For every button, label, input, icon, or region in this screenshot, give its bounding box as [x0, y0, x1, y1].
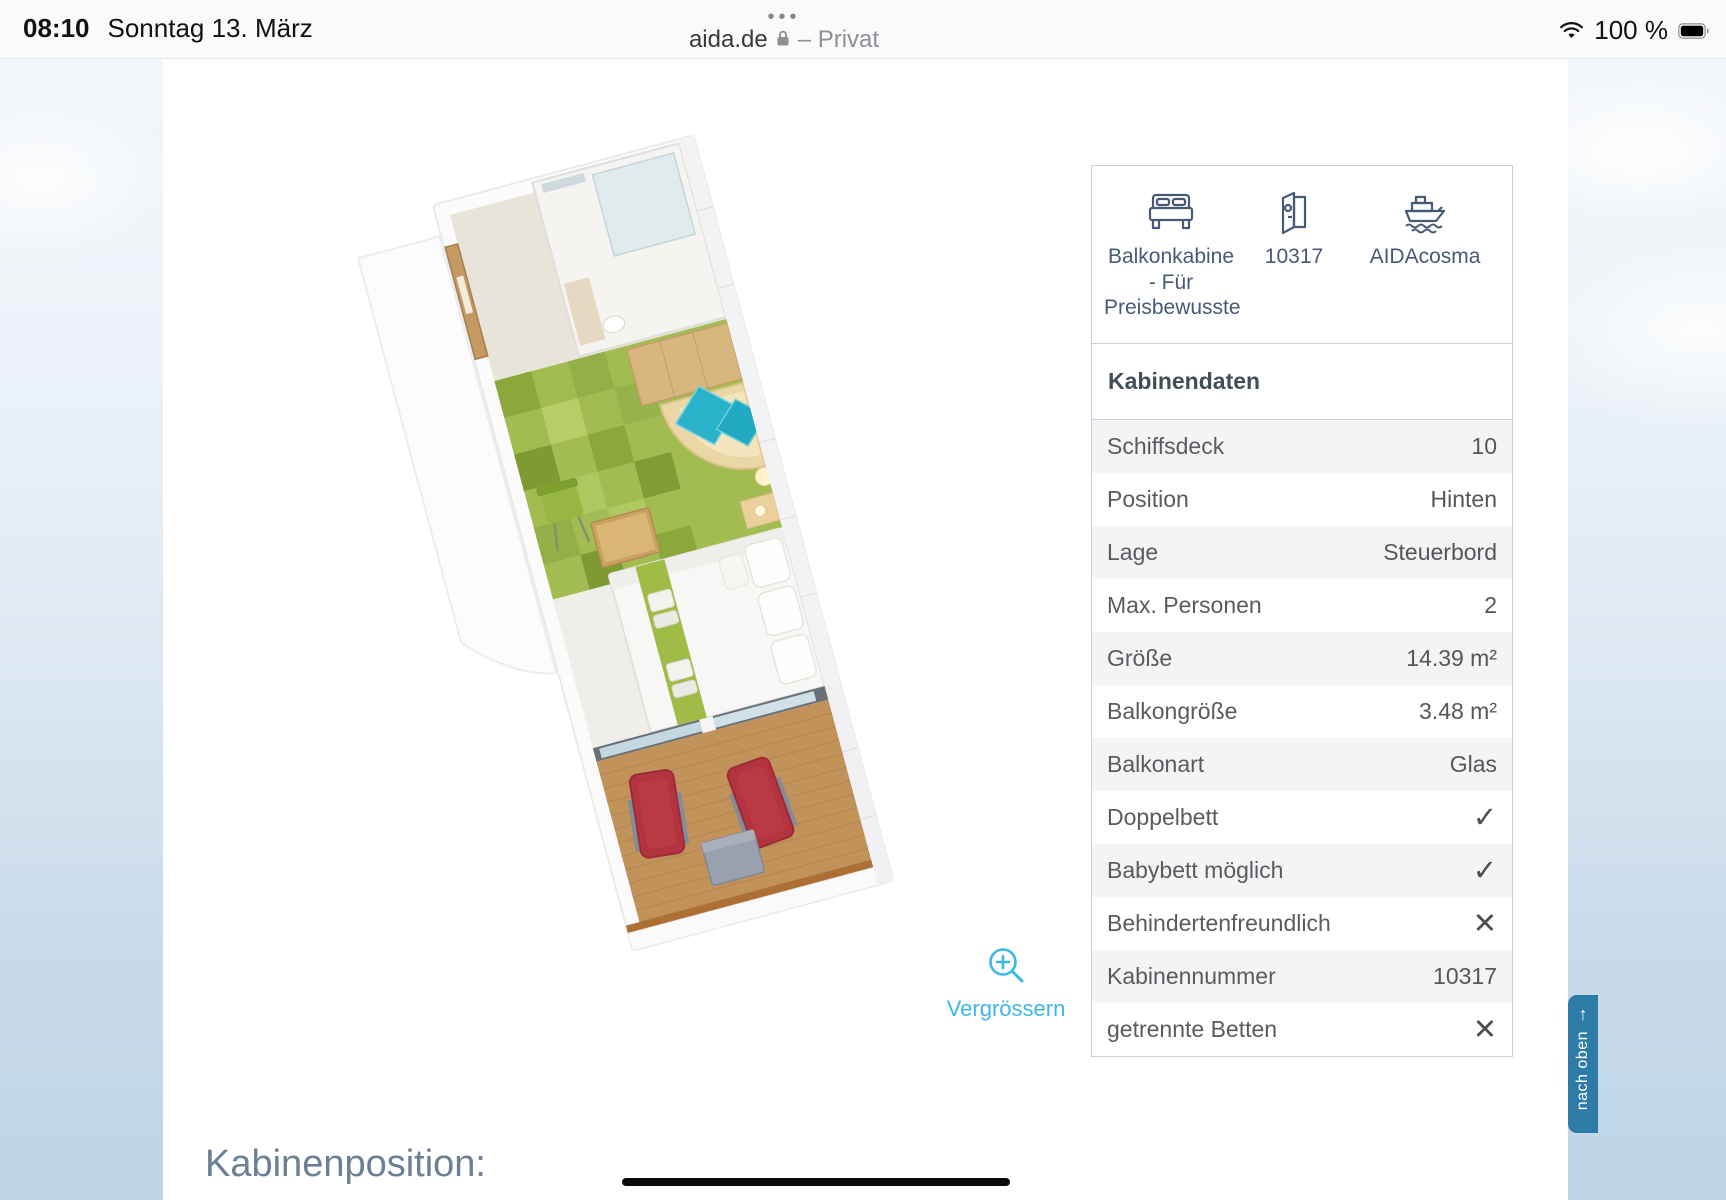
bed-icon — [1147, 186, 1195, 238]
row-label: getrennte Betten — [1107, 1016, 1277, 1043]
cabin-data-title: Kabinendaten — [1092, 343, 1512, 419]
ship-name-label: AIDAcosma — [1350, 244, 1500, 270]
table-row: Doppelbett ✓ — [1092, 791, 1512, 844]
row-value: Hinten — [1431, 486, 1497, 513]
row-value: 3.48 m² — [1419, 698, 1497, 725]
summary-item-ship: AIDAcosma — [1350, 186, 1500, 343]
row-label: Schiffsdeck — [1107, 433, 1224, 460]
row-label: Größe — [1107, 645, 1172, 672]
row-label: Max. Personen — [1107, 592, 1262, 619]
privacy-label: – Privat — [798, 26, 879, 54]
check-icon: ✓ — [1473, 853, 1497, 888]
row-value: 10317 — [1433, 963, 1497, 990]
table-row: Behindertenfreundlich ✕ — [1092, 897, 1512, 950]
magnifier-plus-icon[interactable] — [985, 974, 1027, 991]
row-label: Balkongröße — [1107, 698, 1237, 725]
vergroessern-link[interactable]: Vergrössern — [920, 945, 1092, 1022]
cabin-data-table: Schiffsdeck 10 Position Hinten Lage Steu… — [1092, 419, 1512, 1056]
row-value: 10 — [1471, 433, 1497, 460]
cabin-number-label: 10317 — [1246, 244, 1342, 270]
table-row: getrennte Betten ✕ — [1092, 1003, 1512, 1056]
lock-icon — [776, 26, 790, 54]
row-value: Glas — [1450, 751, 1497, 778]
nach-oben-button[interactable]: ↑ nach oben — [1568, 995, 1598, 1133]
cross-icon: ✕ — [1473, 1012, 1497, 1047]
wifi-icon — [1559, 15, 1584, 46]
row-label: Behindertenfreundlich — [1107, 910, 1331, 937]
table-row: Max. Personen 2 — [1092, 579, 1512, 632]
row-label: Kabinennummer — [1107, 963, 1276, 990]
site-domain[interactable]: aida.de — [689, 26, 768, 54]
browser-status-bar: 08:10 Sonntag 13. März ••• aida.de – Pri… — [0, 0, 1726, 59]
table-row: Größe 14.39 m² — [1092, 632, 1512, 685]
summary-item-cabin-number: 10317 — [1246, 186, 1342, 343]
cabin-type-label: Balkonkabine - Für Preisbewusste — [1104, 244, 1238, 321]
kabinenposition-heading: Kabinenposition: — [205, 1143, 486, 1186]
ship-icon — [1398, 186, 1452, 238]
row-label: Doppelbett — [1107, 804, 1218, 831]
cabin-summary-card: Balkonkabine - Für Preisbewusste 10317 — [1092, 166, 1512, 343]
row-label: Position — [1107, 486, 1189, 513]
row-value: Steuerbord — [1383, 539, 1497, 566]
table-row: Schiffsdeck 10 — [1092, 420, 1512, 473]
row-value: 2 — [1484, 592, 1497, 619]
check-icon: ✓ — [1473, 800, 1497, 835]
cabin-3d-render — [330, 80, 1020, 980]
door-icon — [1277, 186, 1311, 238]
vergroessern-label[interactable]: Vergrössern — [920, 996, 1092, 1022]
summary-item-cabin-type: Balkonkabine - Für Preisbewusste — [1104, 186, 1238, 343]
cross-icon: ✕ — [1473, 906, 1497, 941]
cabin-info-panel: Balkonkabine - Für Preisbewusste 10317 — [1091, 165, 1513, 1057]
battery-icon — [1678, 15, 1710, 46]
table-row: Balkonart Glas — [1092, 738, 1512, 791]
battery-percentage: 100 % — [1594, 15, 1668, 46]
table-row: Position Hinten — [1092, 473, 1512, 526]
up-arrow-icon: ↑ — [1579, 1005, 1588, 1023]
row-value: 14.39 m² — [1406, 645, 1497, 672]
table-row: Lage Steuerbord — [1092, 526, 1512, 579]
table-row: Balkongröße 3.48 m² — [1092, 685, 1512, 738]
home-indicator[interactable] — [622, 1178, 1010, 1186]
row-label: Lage — [1107, 539, 1158, 566]
row-label: Balkonart — [1107, 751, 1204, 778]
table-row: Kabinennummer 10317 — [1092, 950, 1512, 1003]
table-row: Babybett möglich ✓ — [1092, 844, 1512, 897]
nach-oben-label: nach oben — [1574, 1031, 1592, 1110]
row-label: Babybett möglich — [1107, 857, 1283, 884]
